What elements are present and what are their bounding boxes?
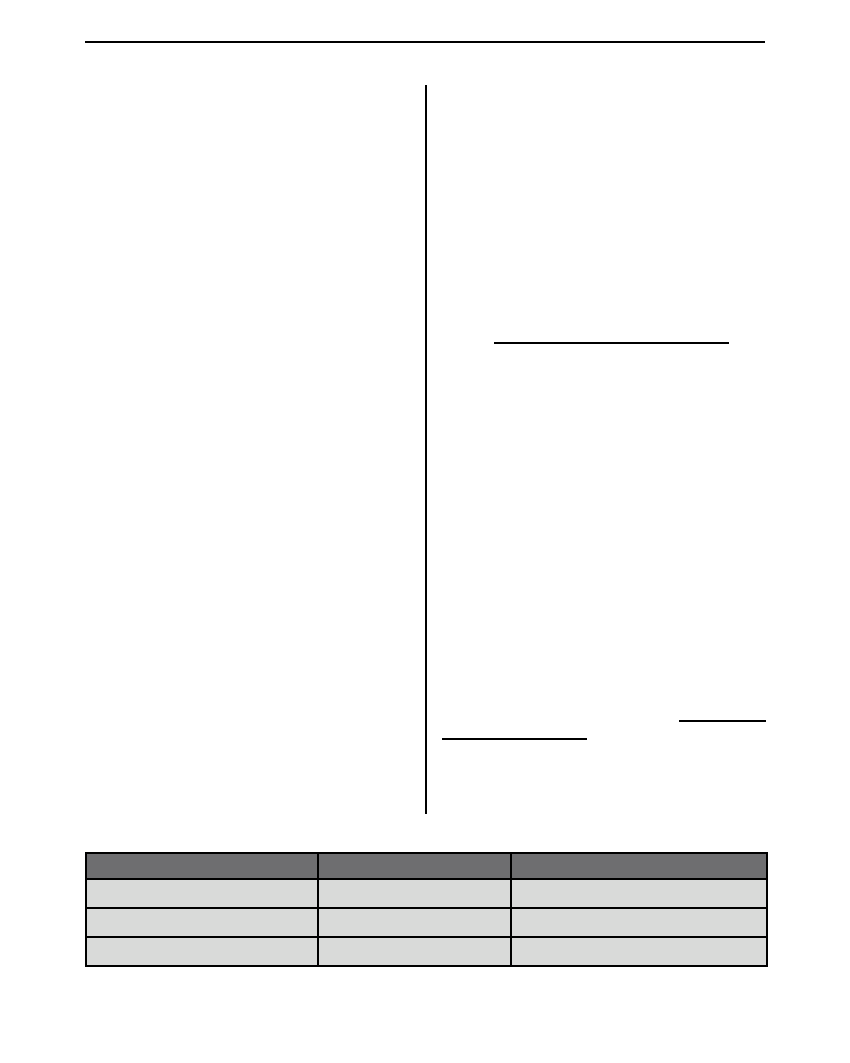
table-header-row [86, 853, 767, 879]
table-cell [86, 937, 318, 966]
table-row [86, 908, 767, 937]
table-cell [318, 937, 511, 966]
document-page [0, 0, 850, 1063]
table-header-cell [86, 853, 318, 879]
table-header-cell [318, 853, 511, 879]
data-table [85, 852, 768, 967]
table-cell [511, 937, 767, 966]
table-cell [318, 908, 511, 937]
table-cell [86, 908, 318, 937]
table-row [86, 879, 767, 908]
column-divider-rule [425, 85, 427, 814]
table-header-cell [511, 853, 767, 879]
right-column-underline-1 [494, 342, 729, 344]
table-cell [318, 879, 511, 908]
page-header-rule [85, 41, 765, 43]
table-cell [511, 908, 767, 937]
right-column-underline-2 [679, 720, 766, 722]
table-row [86, 937, 767, 966]
table-cell [511, 879, 767, 908]
right-column-underline-3 [442, 738, 587, 740]
table-cell [86, 879, 318, 908]
